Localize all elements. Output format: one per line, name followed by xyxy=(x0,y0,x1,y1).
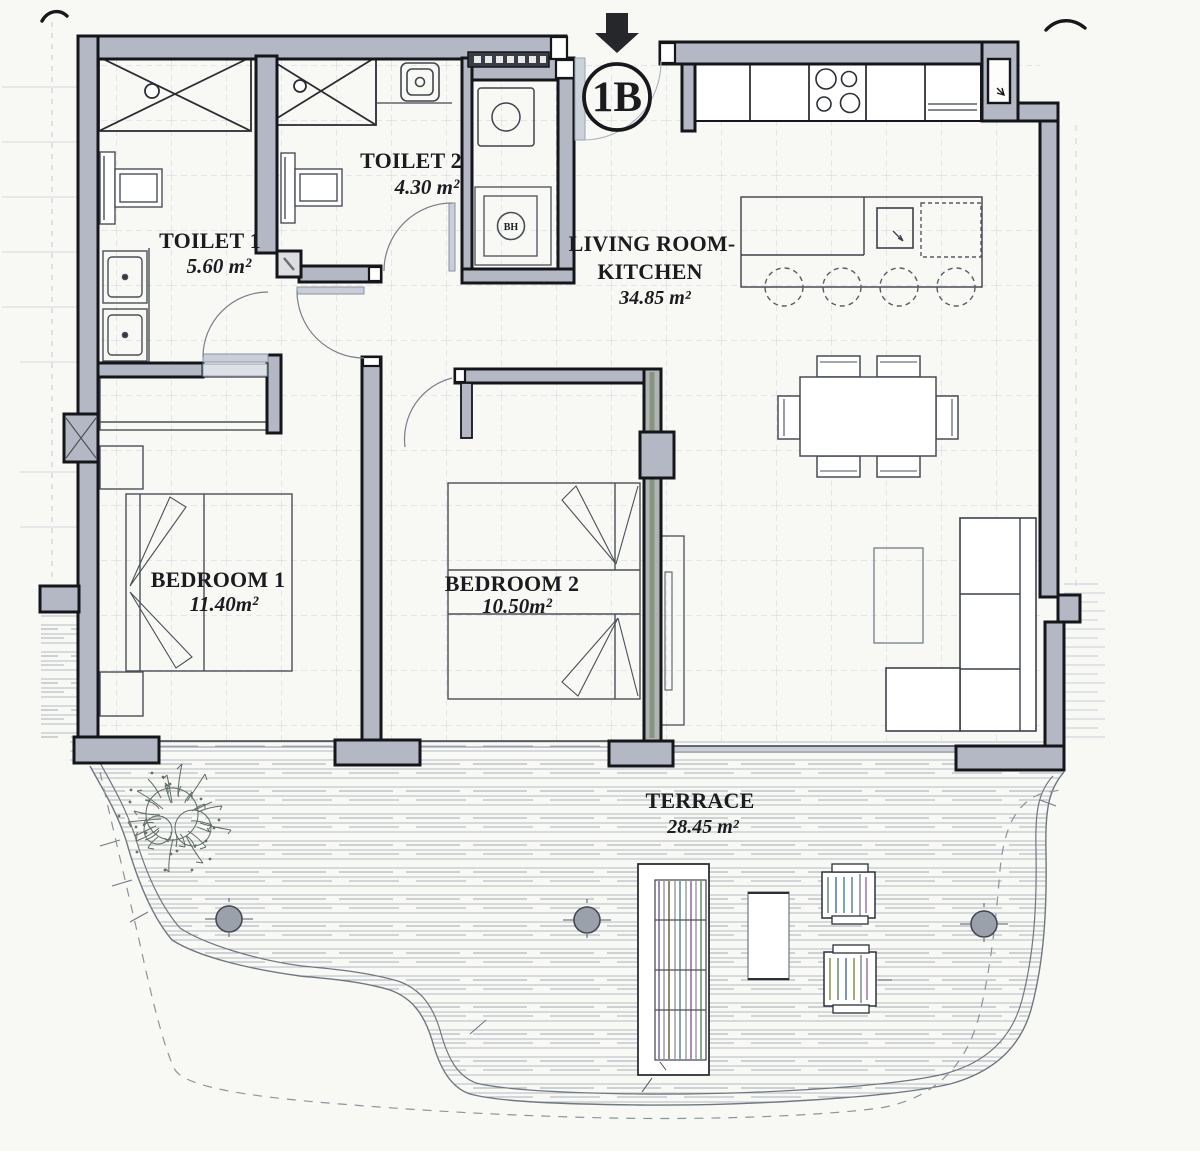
svg-text:TERRACE: TERRACE xyxy=(646,788,755,813)
svg-text:TOILET 1: TOILET 1 xyxy=(159,228,261,253)
svg-text:11.40m²: 11.40m² xyxy=(190,592,259,616)
svg-text:LIVING ROOM-: LIVING ROOM- xyxy=(569,231,736,256)
svg-text:5.60 m²: 5.60 m² xyxy=(187,254,252,278)
svg-text:BH: BH xyxy=(504,222,519,233)
svg-text:28.45 m²: 28.45 m² xyxy=(666,816,740,838)
svg-text:BEDROOM 1: BEDROOM 1 xyxy=(151,567,285,592)
svg-text:34.85 m²: 34.85 m² xyxy=(618,287,692,309)
svg-text:1B: 1B xyxy=(592,74,642,121)
svg-text:KITCHEN: KITCHEN xyxy=(597,259,702,284)
svg-text:10.50m²: 10.50m² xyxy=(482,594,553,618)
svg-text:TOILET 2: TOILET 2 xyxy=(360,148,462,173)
svg-text:BEDROOM 2: BEDROOM 2 xyxy=(445,571,579,596)
svg-text:4.30 m²: 4.30 m² xyxy=(394,175,460,199)
